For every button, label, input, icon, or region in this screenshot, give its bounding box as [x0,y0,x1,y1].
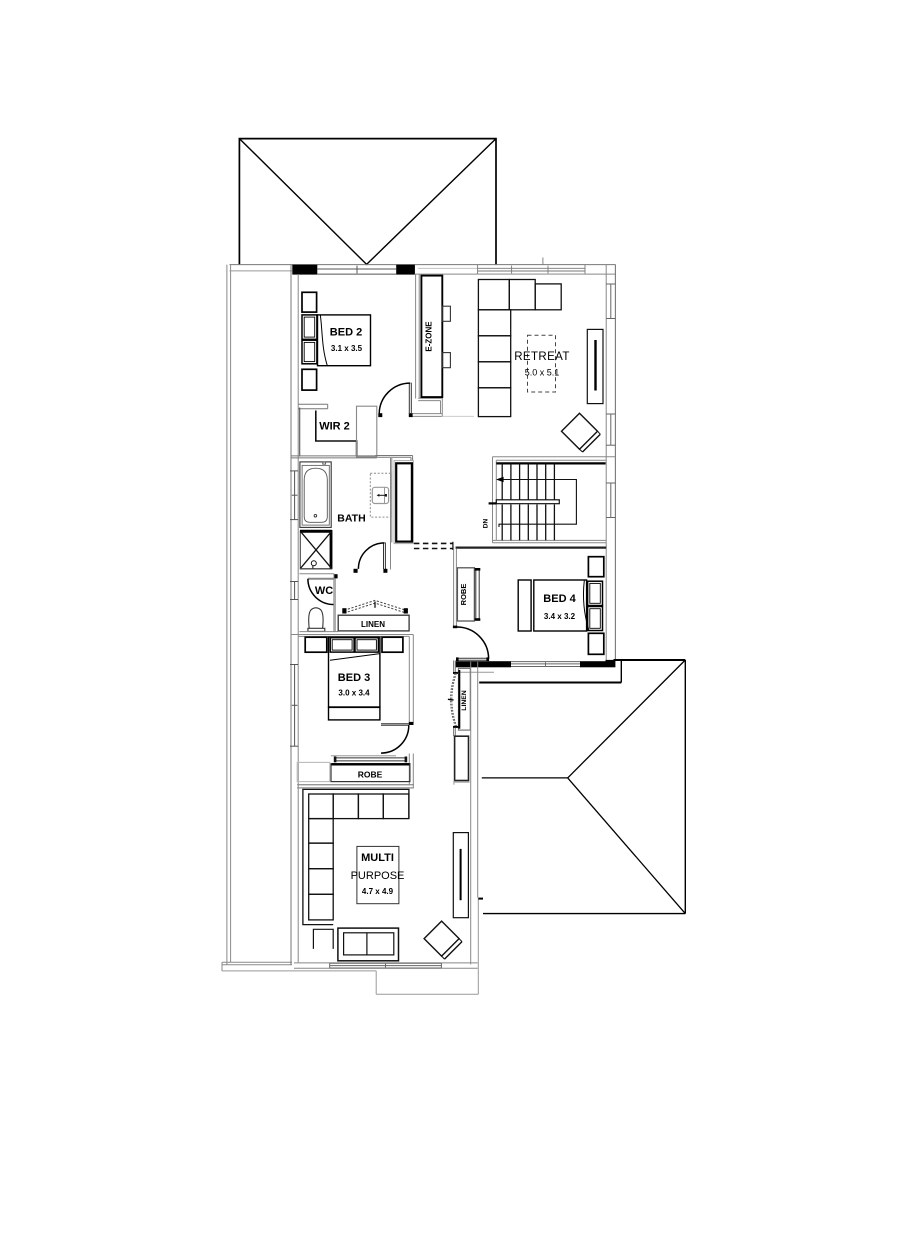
svg-text:E-ZONE: E-ZONE [425,321,434,352]
svg-text:ROBE: ROBE [358,770,383,780]
svg-text:3.0 x 3.4: 3.0 x 3.4 [338,689,370,698]
svg-text:WIR 2: WIR 2 [319,421,350,433]
svg-text:BED 4: BED 4 [543,593,576,605]
svg-text:5.0 x 5.1: 5.0 x 5.1 [525,368,560,378]
svg-text:BED 2: BED 2 [330,327,362,339]
svg-text:PURPOSE: PURPOSE [351,870,405,882]
svg-text:LINEN: LINEN [361,620,385,629]
svg-text:4.7 x 4.9: 4.7 x 4.9 [362,887,394,896]
svg-text:3.1 x 3.5: 3.1 x 3.5 [331,344,363,353]
svg-text:MULTI: MULTI [361,852,394,864]
svg-text:BED 3: BED 3 [338,672,370,684]
svg-text:3.4 x 3.2: 3.4 x 3.2 [544,612,576,621]
svg-text:RETREAT: RETREAT [514,351,570,363]
svg-text:DN: DN [482,519,489,529]
svg-text:ROBE: ROBE [459,584,468,606]
svg-text:LINEN: LINEN [461,690,468,710]
svg-text:BATH: BATH [337,513,365,525]
svg-text:WC: WC [315,585,333,597]
